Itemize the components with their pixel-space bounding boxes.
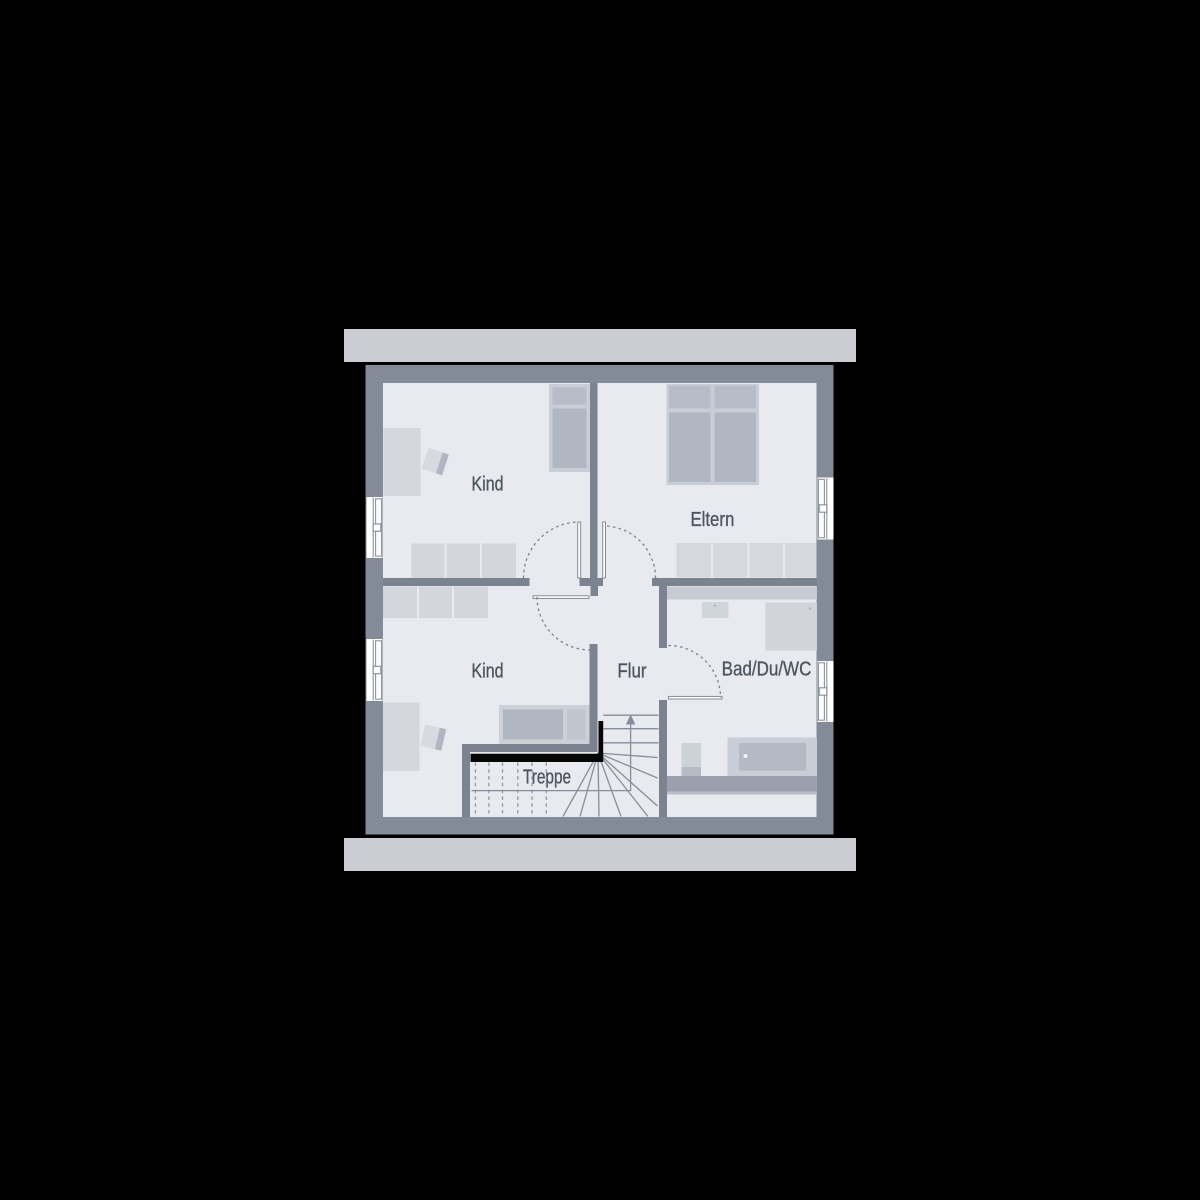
svg-text:Kind: Kind [471,473,503,495]
svg-text:Eltern: Eltern [690,508,734,531]
svg-text:Flur: Flur [618,659,647,682]
svg-text:Treppe: Treppe [523,766,571,788]
svg-text:Bad/Du/WC: Bad/Du/WC [722,657,812,680]
svg-text:Kind: Kind [471,660,503,682]
